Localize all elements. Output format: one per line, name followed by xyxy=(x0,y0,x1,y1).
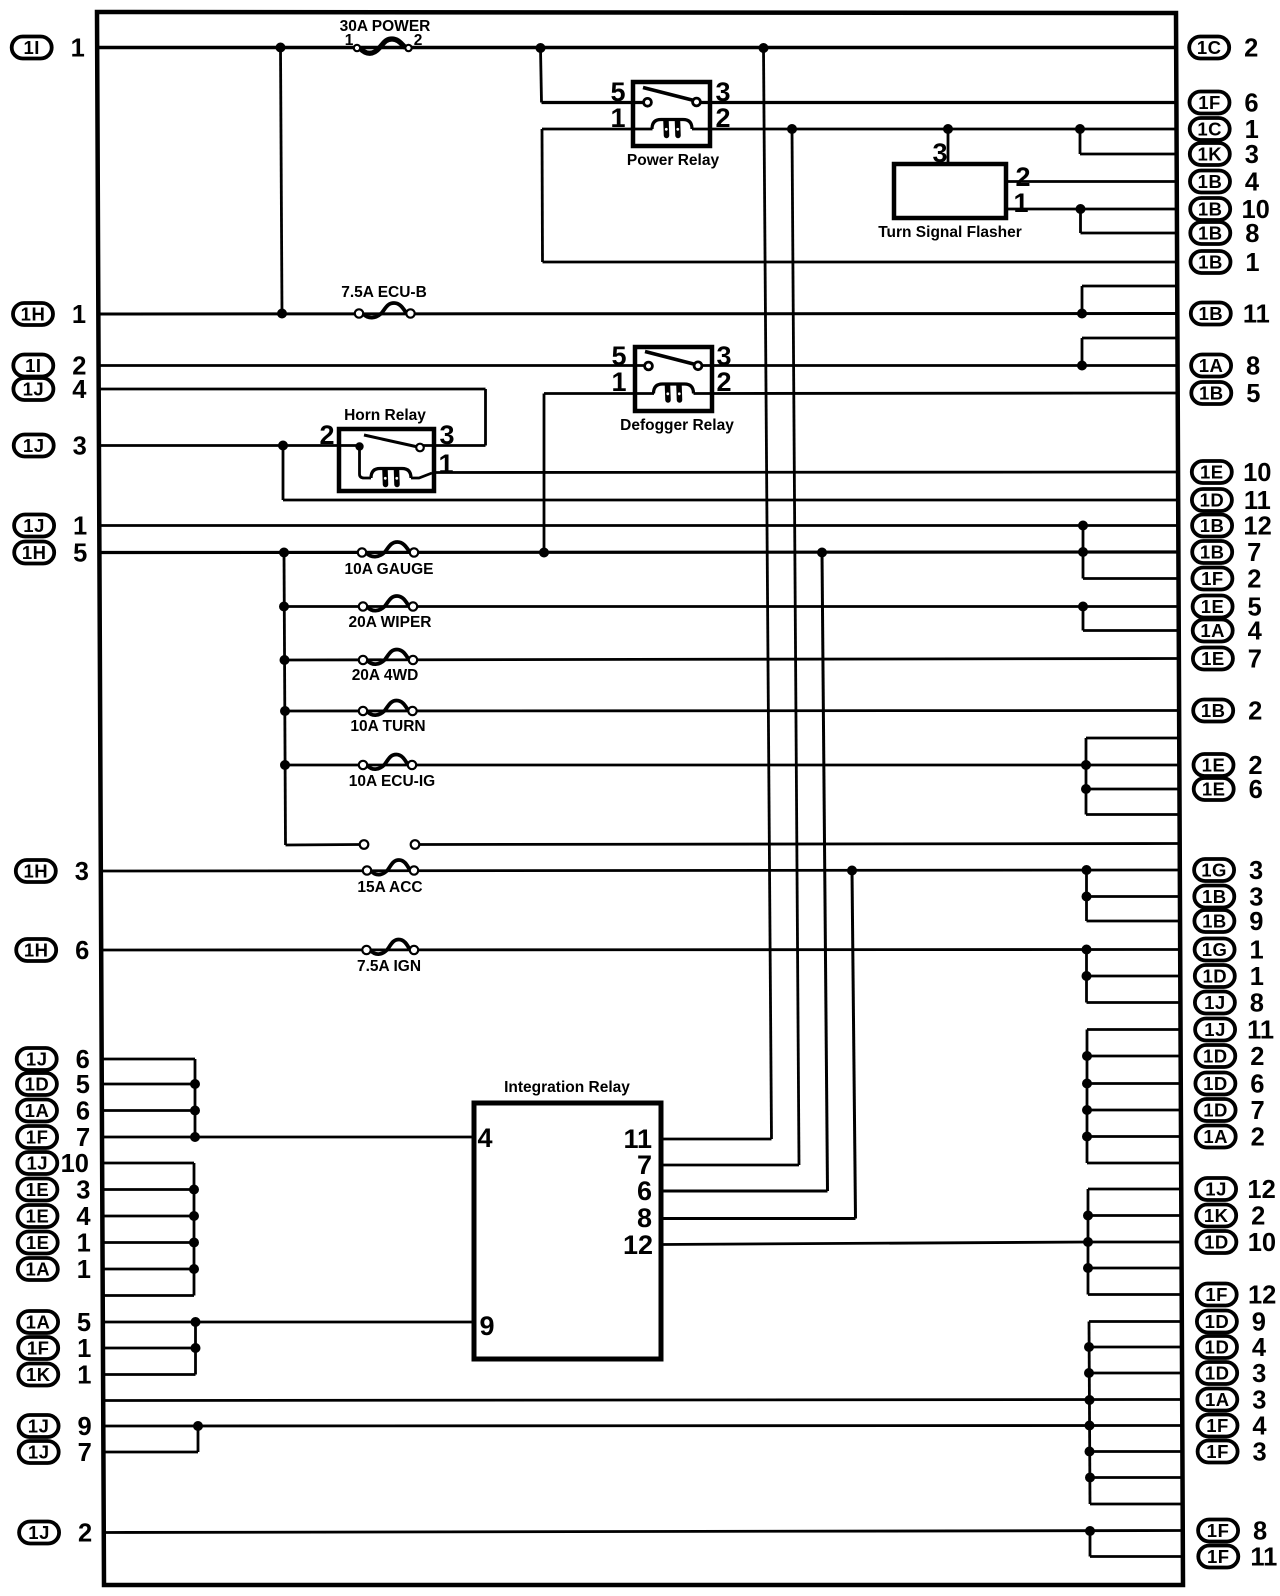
svg-text:12: 12 xyxy=(623,1230,653,1260)
svg-text:2: 2 xyxy=(414,32,423,49)
svg-text:9: 9 xyxy=(479,1311,494,1341)
svg-text:1D: 1D xyxy=(1205,1363,1230,1384)
svg-text:1E: 1E xyxy=(1202,755,1226,776)
svg-text:1E: 1E xyxy=(1202,779,1226,800)
svg-text:1J: 1J xyxy=(1205,1179,1227,1200)
svg-text:1A: 1A xyxy=(1199,355,1224,376)
svg-text:1H: 1H xyxy=(24,940,49,961)
svg-text:1A: 1A xyxy=(1205,1389,1230,1410)
svg-text:1D: 1D xyxy=(1205,1337,1230,1358)
svg-text:1A: 1A xyxy=(1200,620,1225,641)
svg-text:1D: 1D xyxy=(1203,1046,1228,1067)
svg-text:2: 2 xyxy=(1251,1124,1265,1152)
svg-text:1H: 1H xyxy=(22,542,47,563)
svg-text:8: 8 xyxy=(637,1203,652,1233)
svg-text:2: 2 xyxy=(1251,1203,1265,1231)
svg-text:4: 4 xyxy=(1245,169,1260,197)
svg-text:8: 8 xyxy=(1250,990,1264,1018)
svg-text:4: 4 xyxy=(1248,618,1263,646)
svg-text:1E: 1E xyxy=(26,1232,50,1253)
svg-text:2: 2 xyxy=(319,420,334,450)
svg-text:10: 10 xyxy=(61,1150,89,1178)
svg-text:1J: 1J xyxy=(28,1522,50,1543)
svg-text:20A 4WD: 20A 4WD xyxy=(352,667,419,684)
svg-text:3: 3 xyxy=(439,420,454,450)
svg-text:2: 2 xyxy=(1248,698,1262,726)
svg-text:1: 1 xyxy=(77,1230,91,1258)
svg-text:4: 4 xyxy=(76,1203,91,1231)
svg-text:Turn Signal Flasher: Turn Signal Flasher xyxy=(878,224,1022,241)
svg-text:1A: 1A xyxy=(25,1259,50,1280)
svg-text:3: 3 xyxy=(75,858,89,886)
svg-text:1K: 1K xyxy=(26,1364,51,1385)
svg-text:8: 8 xyxy=(1253,1518,1267,1546)
svg-text:9: 9 xyxy=(1249,908,1263,936)
svg-text:Integration Relay: Integration Relay xyxy=(504,1079,630,1096)
svg-text:2: 2 xyxy=(78,1520,92,1548)
svg-text:7: 7 xyxy=(1251,1097,1265,1125)
svg-text:7: 7 xyxy=(76,1124,90,1152)
svg-text:1C: 1C xyxy=(1197,37,1222,58)
svg-text:1K: 1K xyxy=(1204,1205,1229,1226)
svg-text:1: 1 xyxy=(610,103,625,133)
svg-text:Defogger Relay: Defogger Relay xyxy=(620,417,734,434)
svg-text:1D: 1D xyxy=(1202,966,1227,987)
svg-text:1I: 1I xyxy=(25,355,41,376)
svg-text:3: 3 xyxy=(76,1177,90,1205)
svg-text:10: 10 xyxy=(1243,459,1271,487)
svg-text:3: 3 xyxy=(932,138,947,168)
svg-text:1J: 1J xyxy=(28,1416,50,1437)
svg-text:10: 10 xyxy=(1248,1229,1276,1257)
svg-text:1: 1 xyxy=(345,32,354,49)
svg-text:2: 2 xyxy=(1247,566,1261,594)
svg-text:1B: 1B xyxy=(1200,515,1225,536)
svg-text:1F: 1F xyxy=(1206,1441,1229,1462)
svg-text:1: 1 xyxy=(611,367,626,397)
svg-text:1: 1 xyxy=(1250,963,1264,991)
svg-text:11: 11 xyxy=(1243,301,1270,329)
svg-text:1E: 1E xyxy=(26,1179,50,1200)
svg-text:6: 6 xyxy=(75,937,89,965)
svg-text:1B: 1B xyxy=(1201,700,1226,721)
svg-text:10A TURN: 10A TURN xyxy=(350,718,425,735)
svg-text:7: 7 xyxy=(78,1439,92,1467)
svg-text:7: 7 xyxy=(1248,646,1262,674)
svg-text:3: 3 xyxy=(1253,1439,1267,1467)
svg-text:1: 1 xyxy=(1245,116,1259,144)
svg-text:1B: 1B xyxy=(1198,303,1223,324)
svg-text:1D: 1D xyxy=(1203,1100,1228,1121)
svg-text:1D: 1D xyxy=(1204,1232,1229,1253)
svg-text:3: 3 xyxy=(1252,1360,1266,1388)
svg-text:4: 4 xyxy=(477,1123,492,1153)
svg-text:Horn Relay: Horn Relay xyxy=(344,407,426,424)
svg-text:6: 6 xyxy=(76,1046,90,1074)
svg-text:1F: 1F xyxy=(27,1338,50,1359)
svg-text:1J: 1J xyxy=(1204,992,1226,1013)
svg-text:1: 1 xyxy=(1013,188,1028,218)
svg-text:4: 4 xyxy=(1252,1334,1267,1362)
svg-text:5: 5 xyxy=(73,540,87,568)
svg-text:7: 7 xyxy=(1247,539,1261,567)
svg-text:1F: 1F xyxy=(1205,1284,1228,1305)
svg-text:1F: 1F xyxy=(1207,1546,1230,1567)
svg-text:9: 9 xyxy=(1252,1309,1266,1337)
svg-text:1G: 1G xyxy=(1201,860,1227,881)
svg-text:1: 1 xyxy=(77,1256,91,1284)
svg-text:6: 6 xyxy=(1244,90,1258,118)
svg-text:3: 3 xyxy=(73,433,87,461)
svg-text:5: 5 xyxy=(77,1309,91,1337)
svg-text:10A ECU-IG: 10A ECU-IG xyxy=(349,773,435,790)
svg-text:1F: 1F xyxy=(1201,568,1224,589)
svg-text:3: 3 xyxy=(1252,1387,1266,1415)
svg-text:4: 4 xyxy=(72,376,87,404)
svg-text:1: 1 xyxy=(77,1362,91,1390)
svg-text:7.5A ECU-B: 7.5A ECU-B xyxy=(341,284,427,301)
svg-text:9: 9 xyxy=(78,1413,92,1441)
svg-text:10A GAUGE: 10A GAUGE xyxy=(344,561,433,578)
svg-text:4: 4 xyxy=(1252,1413,1267,1441)
svg-text:11: 11 xyxy=(1247,1017,1274,1045)
svg-text:2: 2 xyxy=(1250,1043,1264,1071)
svg-text:1: 1 xyxy=(73,513,87,541)
svg-text:1B: 1B xyxy=(1200,542,1225,563)
svg-text:12: 12 xyxy=(1247,1176,1275,1204)
svg-text:1A: 1A xyxy=(1203,1126,1228,1147)
svg-text:11: 11 xyxy=(1244,487,1271,515)
svg-text:2: 2 xyxy=(716,367,731,397)
svg-text:1E: 1E xyxy=(1201,648,1225,669)
svg-text:1C: 1C xyxy=(1197,119,1222,140)
svg-text:1B: 1B xyxy=(1199,383,1224,404)
svg-text:8: 8 xyxy=(1245,220,1259,248)
svg-text:1J: 1J xyxy=(27,1153,49,1174)
svg-text:1A: 1A xyxy=(25,1100,50,1121)
svg-text:6: 6 xyxy=(1250,1071,1264,1099)
svg-text:2: 2 xyxy=(1244,35,1258,63)
svg-text:1: 1 xyxy=(77,1335,91,1363)
svg-text:1F: 1F xyxy=(1207,1520,1230,1541)
svg-text:1B: 1B xyxy=(1198,171,1223,192)
svg-text:1H: 1H xyxy=(21,304,46,325)
svg-text:1: 1 xyxy=(1245,249,1259,277)
svg-text:1J: 1J xyxy=(1204,1019,1226,1040)
svg-text:12: 12 xyxy=(1248,1282,1276,1310)
svg-text:5: 5 xyxy=(1246,380,1260,408)
svg-text:6: 6 xyxy=(1249,776,1263,804)
svg-text:1D: 1D xyxy=(1200,490,1225,511)
svg-text:1J: 1J xyxy=(23,379,45,400)
svg-text:1A: 1A xyxy=(26,1312,51,1333)
svg-text:5: 5 xyxy=(76,1071,90,1099)
svg-text:1G: 1G xyxy=(1202,939,1228,960)
svg-text:1B: 1B xyxy=(1198,199,1223,220)
svg-text:1B: 1B xyxy=(1198,252,1223,273)
svg-text:1B: 1B xyxy=(1202,886,1227,907)
svg-text:1J: 1J xyxy=(23,435,45,456)
svg-text:11: 11 xyxy=(1250,1544,1277,1572)
svg-text:1E: 1E xyxy=(1200,462,1224,483)
svg-text:1E: 1E xyxy=(1201,596,1225,617)
svg-text:12: 12 xyxy=(1243,513,1271,541)
svg-text:1D: 1D xyxy=(1205,1311,1230,1332)
svg-text:6: 6 xyxy=(637,1176,652,1206)
svg-text:8: 8 xyxy=(1246,353,1260,381)
svg-text:Power Relay: Power Relay xyxy=(627,152,720,169)
svg-text:15A ACC: 15A ACC xyxy=(357,879,422,896)
svg-text:1I: 1I xyxy=(23,37,39,58)
svg-text:6: 6 xyxy=(76,1098,90,1126)
svg-text:1F: 1F xyxy=(1198,92,1221,113)
svg-text:1B: 1B xyxy=(1198,223,1223,244)
svg-text:3: 3 xyxy=(1249,857,1263,885)
svg-text:1E: 1E xyxy=(26,1206,50,1227)
svg-text:1F: 1F xyxy=(26,1127,49,1148)
svg-text:1J: 1J xyxy=(28,1442,50,1463)
svg-text:1J: 1J xyxy=(26,1049,48,1070)
svg-text:1: 1 xyxy=(438,449,453,479)
svg-text:1B: 1B xyxy=(1202,911,1227,932)
svg-text:2: 2 xyxy=(715,103,730,133)
svg-text:1J: 1J xyxy=(23,515,45,536)
svg-text:1F: 1F xyxy=(1206,1415,1229,1436)
svg-text:1K: 1K xyxy=(1197,144,1222,165)
svg-text:1D: 1D xyxy=(25,1074,50,1095)
svg-text:1: 1 xyxy=(71,35,85,63)
svg-text:1D: 1D xyxy=(1203,1073,1228,1094)
svg-text:7.5A IGN: 7.5A IGN xyxy=(357,958,421,975)
svg-text:1: 1 xyxy=(1250,937,1264,965)
svg-text:20A WIPER: 20A WIPER xyxy=(349,614,432,631)
svg-text:3: 3 xyxy=(1245,141,1259,169)
svg-text:1: 1 xyxy=(72,301,86,329)
svg-text:1H: 1H xyxy=(23,861,48,882)
